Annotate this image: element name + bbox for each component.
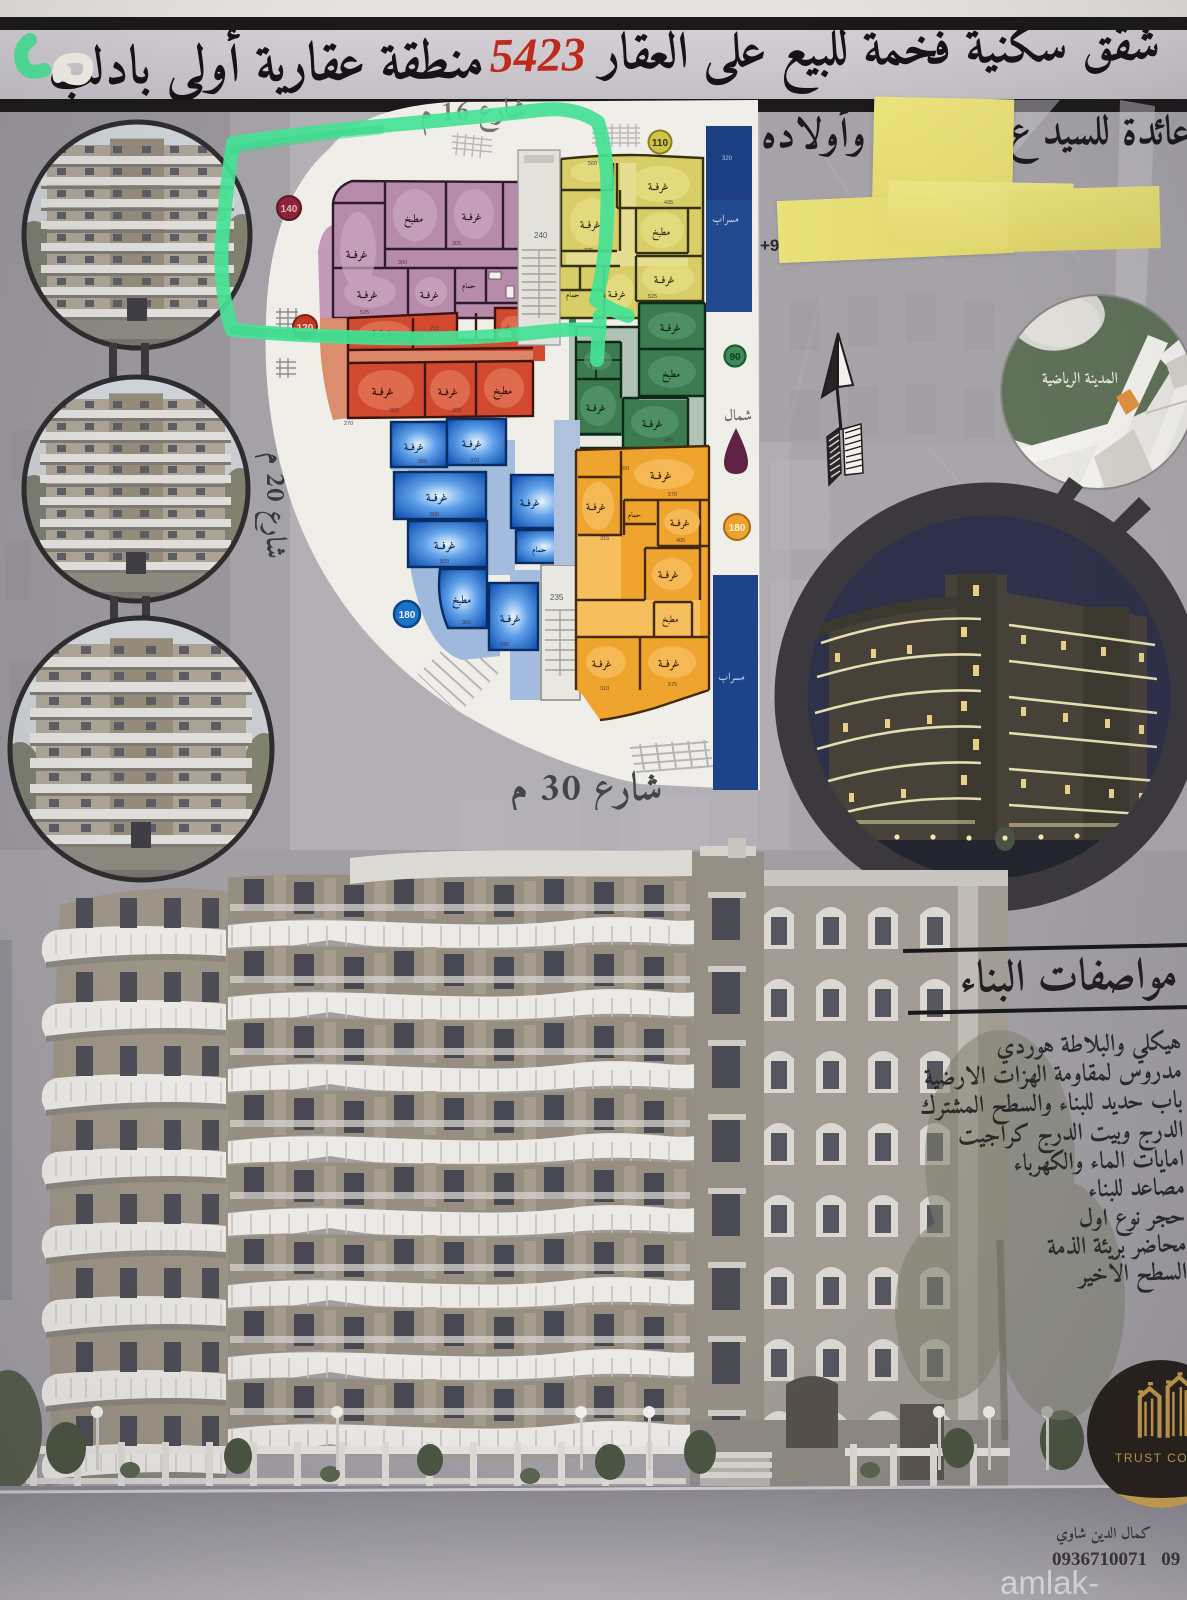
svg-text:575: 575 bbox=[668, 682, 677, 688]
svg-text:195: 195 bbox=[500, 642, 509, 648]
svg-text:360: 360 bbox=[462, 620, 471, 626]
svg-text:310: 310 bbox=[600, 686, 609, 692]
svg-text:TRUST COM: TRUST COM bbox=[1115, 1451, 1187, 1465]
svg-text:180: 180 bbox=[399, 610, 416, 621]
